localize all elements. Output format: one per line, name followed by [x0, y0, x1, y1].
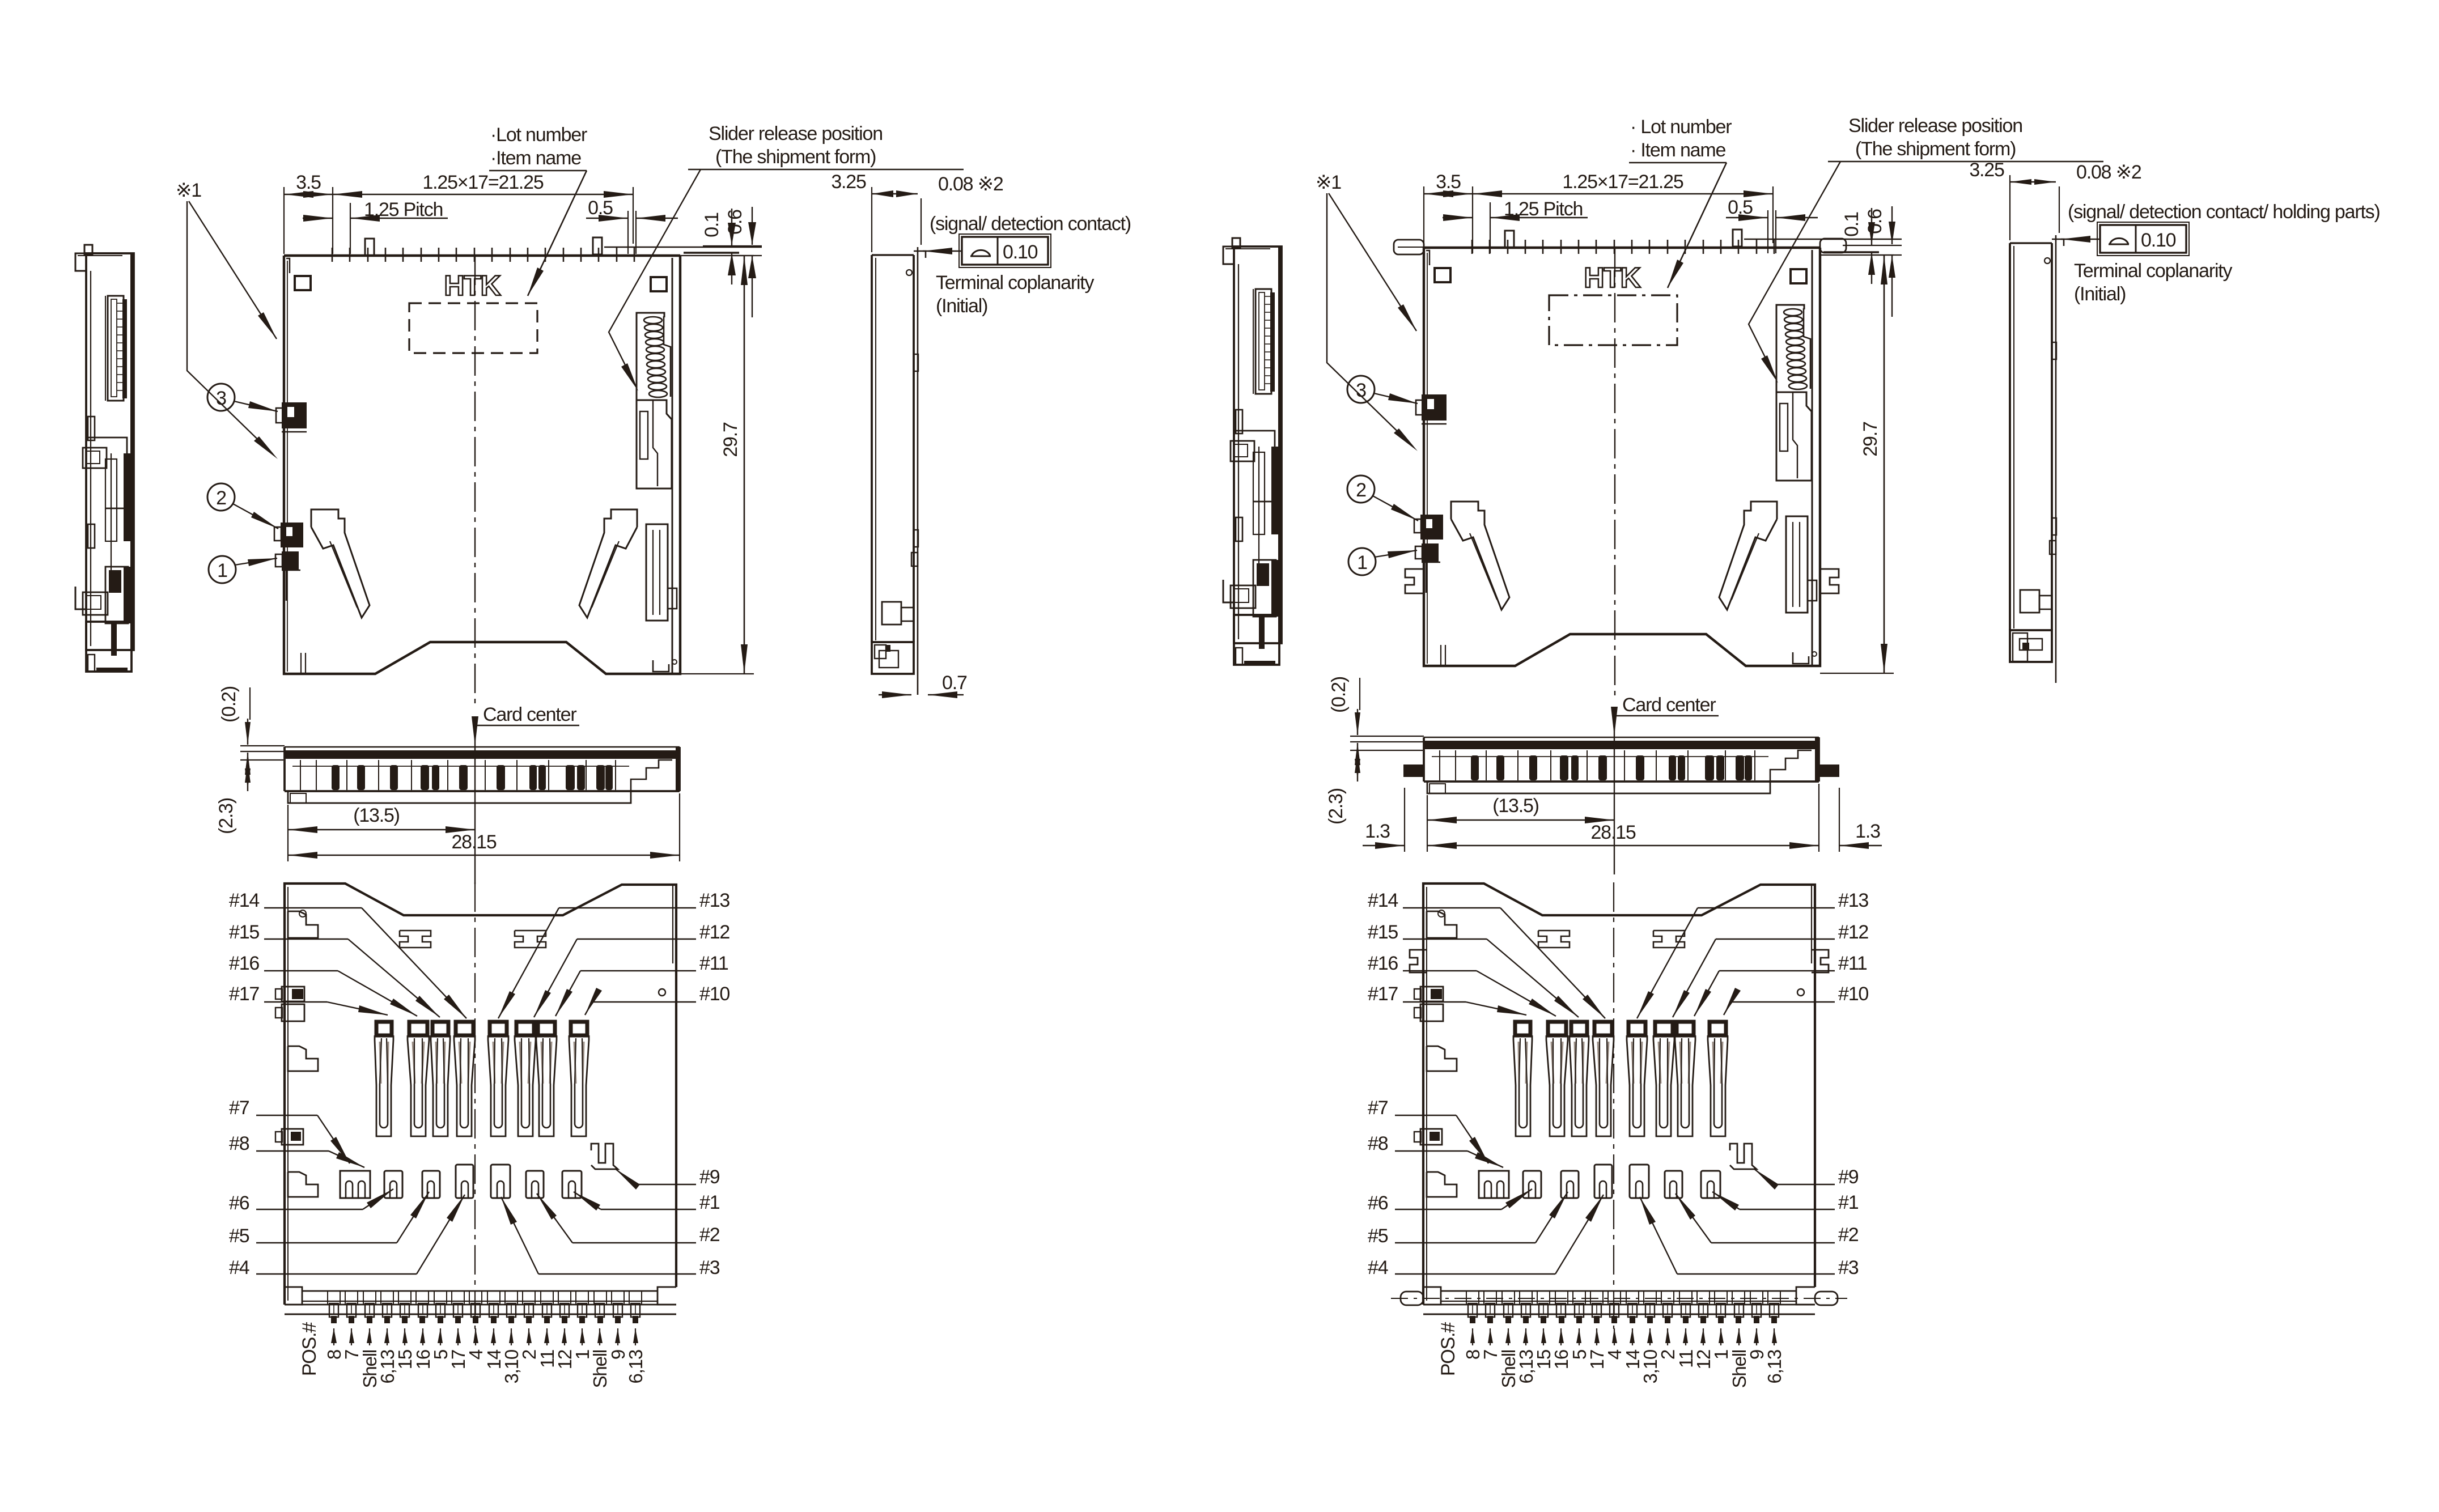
svg-text:#4: #4 — [1368, 1257, 1388, 1279]
svg-text:#5: #5 — [229, 1225, 249, 1247]
svg-text:#1: #1 — [1838, 1192, 1859, 1213]
svg-text:0.5: 0.5 — [588, 197, 613, 219]
svg-text:#6: #6 — [229, 1192, 249, 1214]
svg-text:Slider release position: Slider release position — [1848, 115, 2022, 137]
svg-text:#6: #6 — [1368, 1192, 1388, 1214]
svg-text:#11: #11 — [699, 953, 728, 974]
svg-text:3.5: 3.5 — [296, 172, 321, 193]
svg-text:#9: #9 — [699, 1166, 720, 1188]
svg-text:※1: ※1 — [176, 180, 201, 201]
svg-text:0.08 ※2: 0.08 ※2 — [938, 173, 1003, 195]
svg-text:#2: #2 — [1838, 1224, 1859, 1246]
svg-text:0.10: 0.10 — [2141, 230, 2176, 251]
svg-text:0.1: 0.1 — [701, 213, 723, 237]
svg-text:(13.5): (13.5) — [353, 805, 400, 826]
svg-text:2: 2 — [216, 487, 226, 509]
svg-text:(Initial): (Initial) — [936, 295, 987, 317]
svg-text:#7: #7 — [1368, 1097, 1388, 1119]
svg-text:1.3: 1.3 — [1365, 821, 1390, 842]
svg-text:#10: #10 — [699, 983, 729, 1005]
svg-text:#16: #16 — [1368, 953, 1398, 974]
svg-text:#2: #2 — [699, 1224, 720, 1246]
svg-text:28.15: 28.15 — [451, 831, 496, 853]
svg-text:#9: #9 — [1838, 1166, 1859, 1188]
svg-text:POS.#: POS.# — [299, 1322, 320, 1376]
svg-text:Slider release position: Slider release position — [709, 123, 883, 145]
svg-text:0.1: 0.1 — [1841, 212, 1863, 237]
svg-text:#10: #10 — [1838, 983, 1868, 1005]
svg-text:POS.#: POS.# — [1437, 1322, 1459, 1376]
svg-text:#3: #3 — [699, 1257, 720, 1279]
svg-text:29.7: 29.7 — [720, 422, 741, 457]
svg-text:Terminal coplanarity: Terminal coplanarity — [936, 272, 1095, 294]
svg-text:HTK: HTK — [444, 270, 500, 301]
svg-text:#17: #17 — [1368, 983, 1398, 1005]
svg-text:·Item name: ·Item name — [490, 147, 581, 169]
svg-text:1.25×17=21.25: 1.25×17=21.25 — [422, 172, 543, 193]
svg-text:Terminal coplanarity: Terminal coplanarity — [2074, 260, 2233, 282]
svg-text:#5: #5 — [1368, 1225, 1388, 1247]
svg-text:#17: #17 — [229, 983, 259, 1005]
svg-text:(signal/ detection contact): (signal/ detection contact) — [930, 213, 1131, 235]
svg-text:· Lot number: · Lot number — [1630, 116, 1732, 138]
svg-text:6,13: 6,13 — [1764, 1350, 1785, 1383]
svg-text:29.7: 29.7 — [1860, 422, 1881, 457]
svg-text:3: 3 — [1356, 380, 1366, 401]
svg-text:#16: #16 — [229, 953, 259, 974]
svg-text:Card center: Card center — [1622, 694, 1716, 716]
svg-text:28.15: 28.15 — [1590, 822, 1635, 843]
svg-text:#15: #15 — [1368, 921, 1398, 943]
svg-text:(The shipment form): (The shipment form) — [715, 146, 876, 168]
svg-text:#11: #11 — [1838, 953, 1867, 974]
svg-text:(The shipment form): (The shipment form) — [1855, 138, 2016, 160]
svg-text:1.25 Pitch: 1.25 Pitch — [364, 199, 443, 220]
svg-text:·Lot number: ·Lot number — [490, 124, 587, 146]
svg-text:3: 3 — [216, 388, 226, 409]
svg-text:0.10: 0.10 — [1003, 241, 1038, 263]
svg-text:1.25×17=21.25: 1.25×17=21.25 — [1562, 171, 1683, 193]
svg-text:1: 1 — [1357, 552, 1367, 574]
svg-text:#12: #12 — [699, 921, 729, 943]
svg-text:#14: #14 — [229, 890, 259, 911]
svg-text:· Item name: · Item name — [1630, 139, 1725, 161]
svg-text:(13.5): (13.5) — [1492, 795, 1539, 817]
svg-text:6,13: 6,13 — [625, 1350, 646, 1383]
svg-text:#1: #1 — [699, 1192, 720, 1213]
svg-text:#14: #14 — [1368, 890, 1398, 911]
svg-text:0.08 ※2: 0.08 ※2 — [2076, 162, 2141, 183]
svg-text:(2.3): (2.3) — [215, 798, 237, 834]
svg-text:(0.2): (0.2) — [218, 686, 240, 723]
svg-text:#8: #8 — [1368, 1133, 1388, 1154]
svg-text:Card center: Card center — [483, 704, 576, 725]
svg-text:1.3: 1.3 — [1855, 821, 1880, 842]
svg-text:※1: ※1 — [1316, 172, 1341, 193]
svg-text:(Initial): (Initial) — [2074, 283, 2126, 305]
svg-text:1: 1 — [217, 560, 227, 581]
svg-text:(signal/ detection contact/ ho: (signal/ detection contact/ holding part… — [2068, 201, 2380, 223]
svg-text:#15: #15 — [229, 921, 259, 943]
svg-text:#13: #13 — [699, 890, 729, 911]
svg-text:0.6: 0.6 — [1864, 209, 1886, 234]
svg-text:0.6: 0.6 — [724, 210, 746, 235]
svg-text:#7: #7 — [229, 1097, 249, 1119]
svg-text:2: 2 — [1356, 479, 1366, 501]
svg-text:(0.2): (0.2) — [1328, 677, 1350, 713]
svg-text:3.5: 3.5 — [1436, 171, 1461, 193]
svg-text:#13: #13 — [1838, 890, 1868, 911]
svg-text:3.25: 3.25 — [1969, 159, 2004, 181]
svg-text:0.7: 0.7 — [942, 672, 967, 694]
svg-text:#4: #4 — [229, 1257, 249, 1279]
svg-text:1.25 Pitch: 1.25 Pitch — [1504, 198, 1583, 220]
svg-text:#12: #12 — [1838, 921, 1868, 943]
svg-text:(2.3): (2.3) — [1325, 788, 1347, 825]
svg-text:#3: #3 — [1838, 1257, 1859, 1279]
svg-text:HTK: HTK — [1584, 262, 1640, 294]
svg-text:0.5: 0.5 — [1728, 197, 1753, 218]
svg-text:#8: #8 — [229, 1133, 249, 1154]
svg-text:3.25: 3.25 — [831, 171, 866, 193]
